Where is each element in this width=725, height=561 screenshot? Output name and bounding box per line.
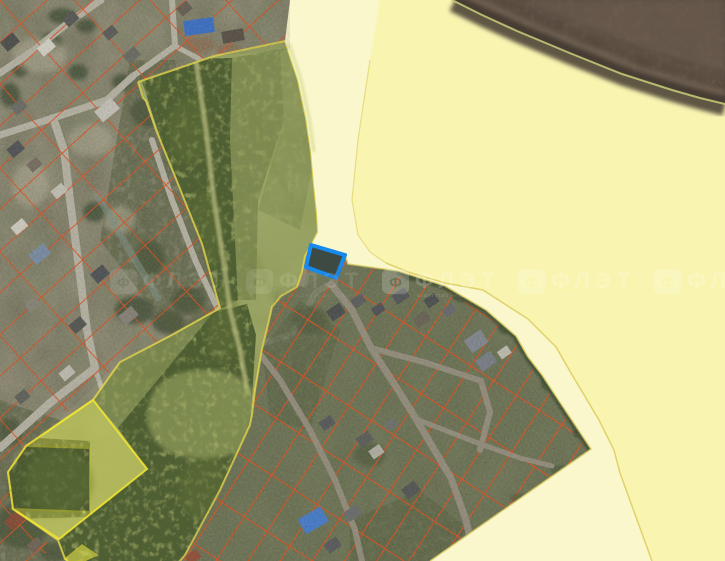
svg-text:агентство недвижимости: агентство недвижимости [281, 293, 362, 299]
svg-text:ФЛЭТ: ФЛЭТ [415, 268, 499, 293]
svg-text:ФЛЭТ: ФЛЭТ [551, 268, 635, 293]
svg-text:ФЛЭТ: ФЛЭТ [687, 268, 725, 293]
svg-text:агентство недвижимости: агентство недвижимости [417, 293, 498, 299]
svg-text:ФЛЭТ: ФЛЭТ [279, 268, 363, 293]
svg-text:агентство недвижимости: агентство недвижимости [553, 293, 634, 299]
svg-text:ФЛЭТ: ФЛЭТ [143, 268, 227, 293]
svg-text:агентство недвижимости: агентство недвижимости [689, 293, 725, 299]
svg-text:агентство недвижимости: агентство недвижимости [145, 293, 226, 299]
